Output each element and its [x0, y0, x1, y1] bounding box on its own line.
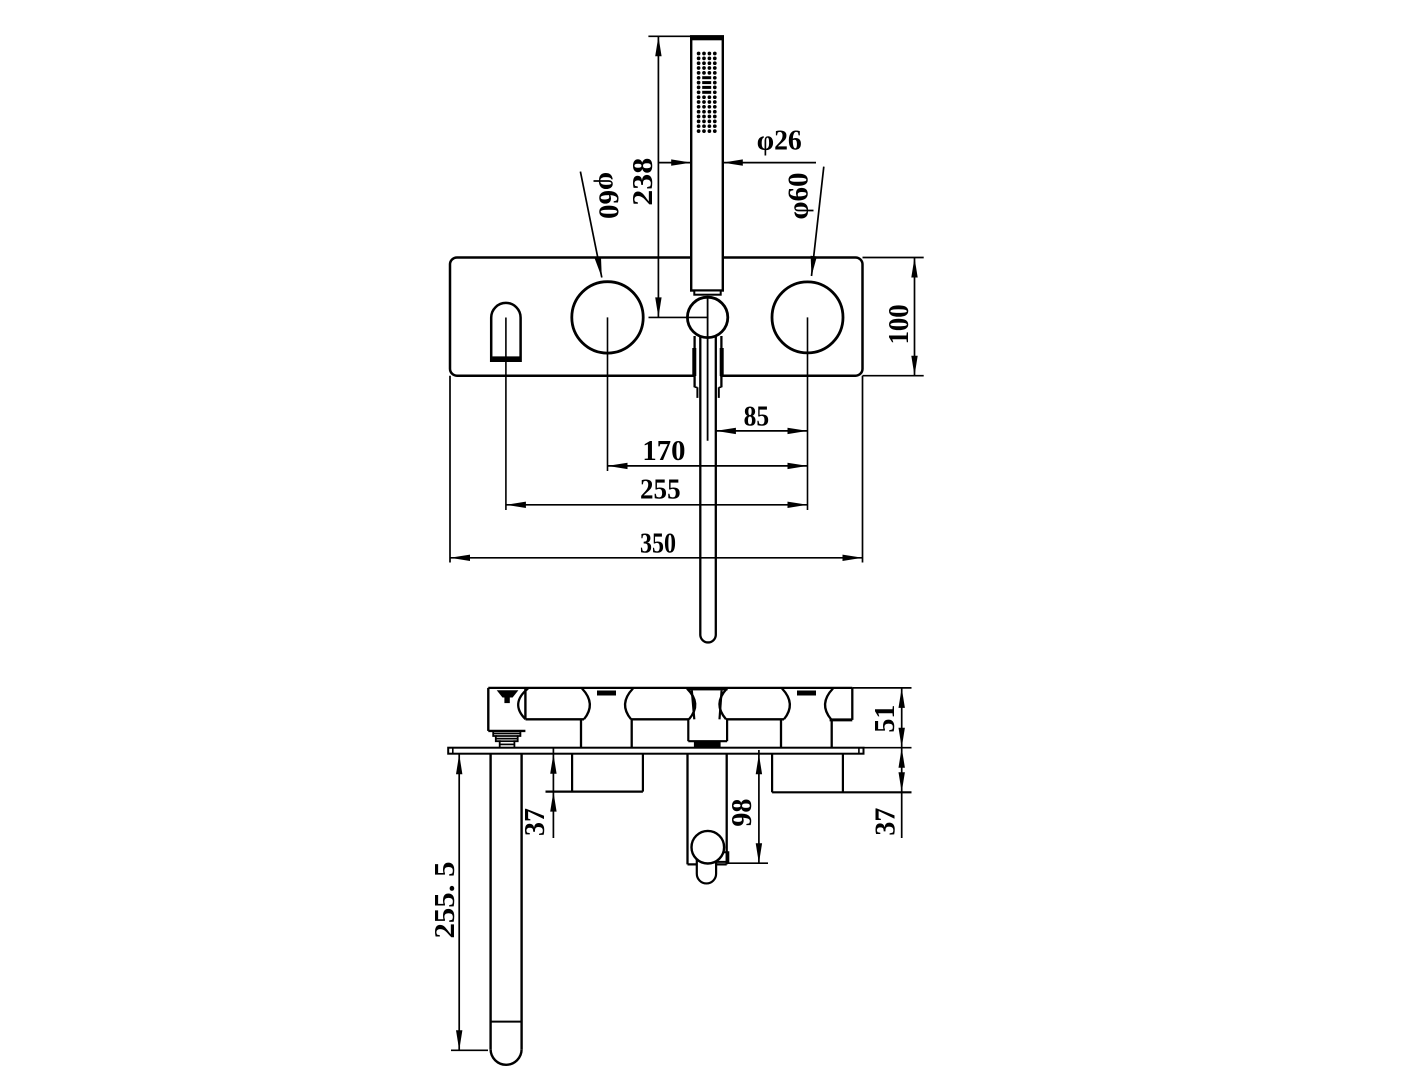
svg-text:51: 51 [869, 705, 901, 733]
svg-text:100: 100 [883, 304, 915, 344]
svg-text:255. 5: 255. 5 [429, 862, 461, 939]
svg-text:238: 238 [627, 158, 659, 206]
svg-text:37: 37 [869, 808, 901, 836]
svg-text:85: 85 [744, 400, 770, 432]
svg-text:255: 255 [640, 473, 681, 505]
svg-text:37: 37 [519, 808, 551, 836]
svg-text:φ60: φ60 [783, 173, 815, 220]
svg-text:φ60: φ60 [593, 172, 625, 219]
svg-text:98: 98 [726, 799, 758, 827]
svg-text:170: 170 [642, 435, 685, 467]
svg-text:350: 350 [640, 527, 676, 559]
svg-text:φ26: φ26 [757, 124, 802, 156]
